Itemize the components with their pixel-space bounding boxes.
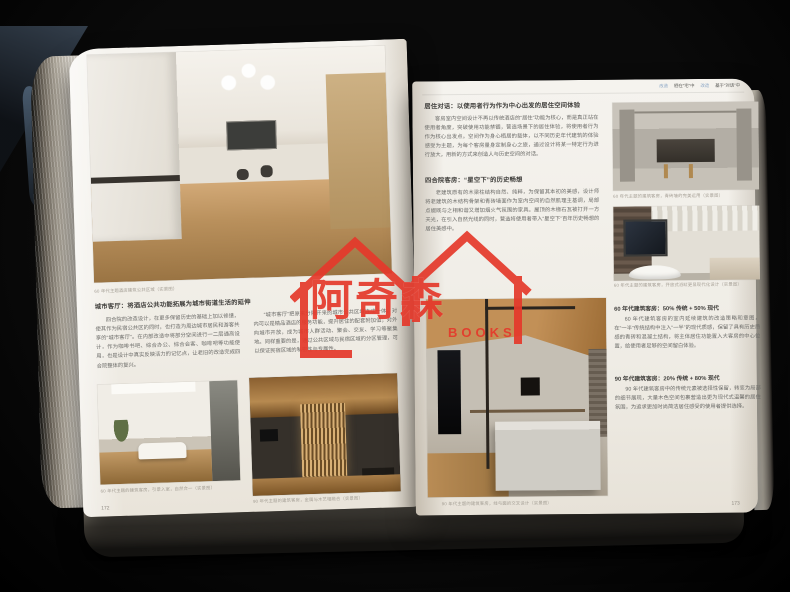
- book-photo-scene: 60 年代主题酒店建筑公共区域（实景图） 城市客厅：将酒店公共功能拓展为城市街道…: [0, 0, 790, 592]
- bathtub-shape: [628, 265, 681, 279]
- wood-floor-plane: [252, 475, 400, 496]
- concrete-column: [736, 109, 751, 181]
- column-1: 四合院的改造设计，在更多保留历史的基础上加以修缮，使其作为民宿公共区的同时，也打…: [95, 312, 241, 371]
- bookstore-watermark: 阿奇森 BOOKS: [290, 222, 580, 362]
- photo-b-caption: 90 年代主题的建筑客房，金属与木艺相融合（实景图）: [253, 494, 403, 505]
- stool-leg: [664, 164, 668, 178]
- header-rule: [422, 92, 744, 96]
- left-wall-plane: [87, 52, 182, 242]
- courtyard-heading: 四合院客房：“星空下”的历史畅想: [425, 174, 605, 185]
- window-plane: [624, 220, 668, 257]
- header-tag: 改造: [700, 83, 709, 89]
- tv-shape: [520, 378, 540, 396]
- photo2-caption: 60 年代主题的建筑客房，开放式浴缸更显现代化设计（实景图）: [614, 281, 760, 288]
- hero-caption-right: 90 年代主题的建筑客房，线与面的交叉设计（实景图）: [442, 500, 612, 507]
- window-plane: [226, 120, 277, 151]
- concrete-column: [620, 110, 635, 182]
- mesh-screen-plane: [300, 403, 347, 478]
- photo-a-caption: 60 年代主题的建筑客房，引景入室，自然合一（实景图）: [101, 484, 249, 495]
- dialog-paragraph: 客房室内空间设计不再以传统酒店的“居住”功能为核心，而是真正站在使用者角度，突破…: [424, 114, 598, 161]
- header-title: 基于“对话”中: [715, 83, 740, 89]
- photo-corridor: [97, 380, 240, 484]
- glass-panel-plane: [209, 380, 240, 481]
- watermark-name: 阿奇森: [310, 280, 445, 323]
- white-island-shape: [496, 421, 601, 491]
- header-title: 栖在“宅”中: [674, 83, 695, 89]
- pendant-lights: [206, 56, 285, 99]
- header-tag: 改造: [659, 83, 668, 89]
- bench-shape: [362, 468, 395, 476]
- bar-island-shape: [656, 139, 715, 162]
- photo-industrial-bar: [612, 101, 759, 190]
- page-number-left: 172: [101, 505, 110, 511]
- stool-leg: [689, 164, 693, 178]
- running-header: 改造 栖在“宅”中 改造 基于“对话”中: [659, 83, 740, 90]
- dark-doorway: [437, 351, 461, 434]
- dialog-heading: 居住对话：以使用者行为作为中心出发的居住空间体验: [424, 100, 604, 111]
- photo1-caption: 60 年代主题的建筑客房，青砖墙的完美运用（实景图）: [613, 192, 759, 199]
- chair-shape: [260, 165, 272, 177]
- bed-shape: [138, 442, 186, 459]
- tv-shape: [260, 429, 278, 441]
- paragraph-90s: 90 年代建筑客房中的传统元素被选择性保留，转变为局部的细节展现，大量木色空间包…: [615, 384, 761, 413]
- heading-60s: 60 年代建筑客房：50% 传统 + 50% 现代: [614, 302, 760, 312]
- paragraph-60s: 60 年代建筑客房的室内延续建筑的改造策略和意图，在“一半”传统结构中注入“一半…: [614, 314, 760, 352]
- heading-90s: 90 年代建筑客房：20% 传统 + 80% 现代: [615, 372, 761, 382]
- chair-shape: [237, 168, 249, 180]
- photo-tub-room: [613, 205, 760, 280]
- bed-shape: [710, 257, 760, 280]
- wood-wall-plane: [326, 73, 390, 230]
- photo-screen-room: [249, 373, 401, 496]
- page-number-right: 173: [731, 501, 739, 507]
- watermark-books-label: BOOKS: [448, 325, 516, 340]
- plant-shape: [112, 420, 130, 445]
